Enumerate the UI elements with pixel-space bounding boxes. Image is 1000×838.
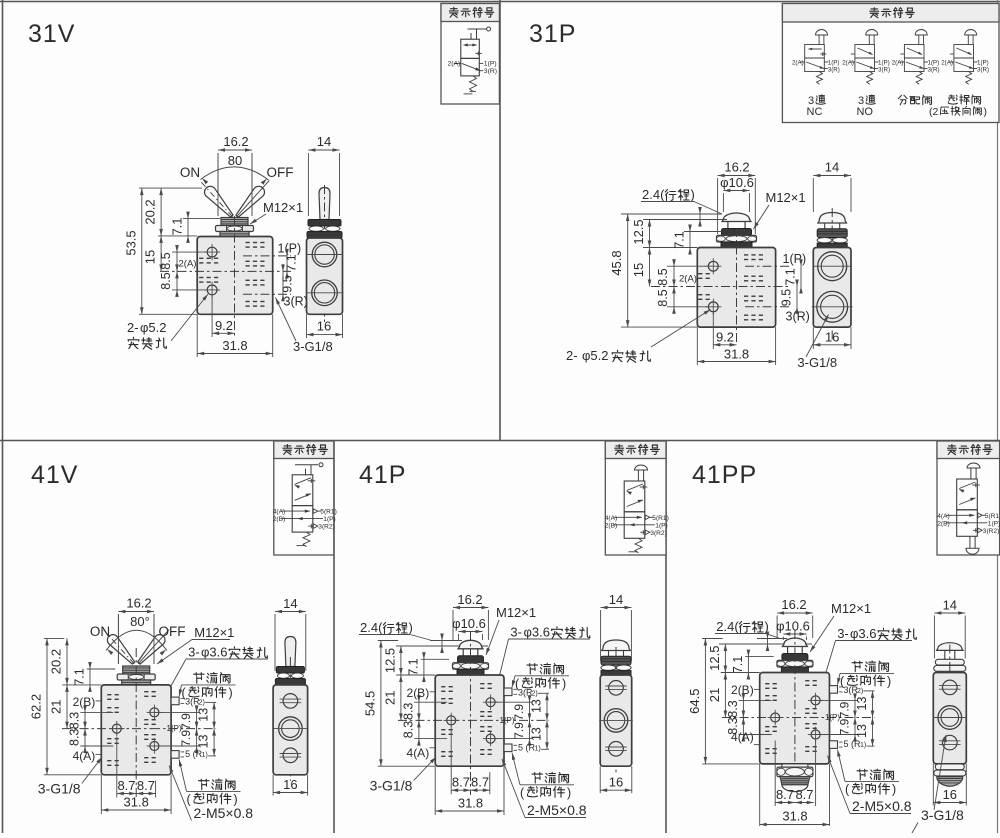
svg-text:7.1: 7.1 (285, 254, 299, 271)
svg-text:7.1: 7.1 (731, 656, 745, 673)
svg-text:): ) (409, 620, 413, 635)
svg-text:3-: 3- (188, 645, 200, 660)
svg-text:4(A): 4(A) (407, 746, 430, 760)
svg-text:16.2: 16.2 (781, 597, 806, 612)
svg-text:5(R1): 5(R1) (320, 509, 337, 516)
svg-text:2-M5×0.8: 2-M5×0.8 (852, 798, 912, 814)
svg-text:8.3: 8.3 (68, 729, 82, 746)
svg-text:φ10.6: φ10.6 (452, 616, 486, 631)
svg-text:8.3: 8.3 (401, 721, 415, 738)
svg-text:2(B): 2(B) (937, 520, 949, 527)
svg-text:41V: 41V (31, 461, 78, 489)
svg-text:2(B): 2(B) (731, 683, 754, 697)
svg-text:4(A): 4(A) (731, 730, 754, 744)
svg-text:45.8: 45.8 (609, 250, 624, 275)
svg-text:2-M5×0.8: 2-M5×0.8 (527, 802, 587, 818)
svg-text:13: 13 (197, 708, 211, 722)
svg-text:2(A): 2(A) (842, 60, 854, 67)
svg-text:3(R): 3(R) (977, 66, 989, 73)
svg-text:31.8: 31.8 (782, 809, 807, 824)
svg-text:2(B): 2(B) (407, 686, 430, 700)
svg-text:3-G1/8: 3-G1/8 (370, 778, 413, 794)
svg-text:41PP: 41PP (692, 461, 757, 489)
svg-text:φ3.6: φ3.6 (850, 626, 877, 641)
svg-text:16.2: 16.2 (126, 596, 151, 611)
svg-text:8.7: 8.7 (471, 775, 489, 790)
svg-text:7.1: 7.1 (73, 668, 87, 685)
svg-text:2(A): 2(A) (941, 60, 953, 67)
svg-text:9.2: 9.2 (716, 330, 734, 345)
svg-text:13: 13 (530, 727, 544, 741)
svg-text:14: 14 (609, 592, 623, 607)
svg-text:4(A): 4(A) (937, 513, 949, 520)
svg-text:OFF: OFF (267, 165, 294, 180)
svg-text:NO: NO (856, 106, 873, 118)
svg-text:15: 15 (631, 263, 646, 277)
svg-text:80°: 80° (130, 614, 150, 629)
svg-text:9.2: 9.2 (215, 318, 233, 333)
svg-text:2(A): 2(A) (792, 60, 804, 67)
svg-text:15: 15 (143, 250, 158, 264)
svg-text:16: 16 (943, 787, 957, 802)
svg-text:20.2: 20.2 (49, 649, 64, 674)
svg-text:8.7: 8.7 (137, 778, 155, 793)
svg-text:M12×1: M12×1 (496, 605, 536, 620)
svg-text:62.2: 62.2 (29, 694, 44, 719)
svg-text:21: 21 (49, 700, 64, 714)
svg-text:8.7: 8.7 (117, 778, 135, 793)
svg-text:9.5: 9.5 (281, 275, 295, 292)
svg-text:80: 80 (228, 153, 242, 168)
svg-text:3(R): 3(R) (284, 295, 308, 309)
svg-text:7.1: 7.1 (673, 231, 687, 248)
svg-text:2(A): 2(A) (179, 259, 197, 270)
svg-text:3-G1/8: 3-G1/8 (38, 781, 81, 797)
svg-text:4(A): 4(A) (273, 509, 285, 516)
svg-text:φ5.2: φ5.2 (582, 348, 609, 363)
svg-text:31.8: 31.8 (124, 795, 149, 810)
svg-text:31V: 31V (28, 20, 75, 48)
svg-text:54.5: 54.5 (362, 691, 377, 716)
svg-text:31.8: 31.8 (458, 796, 483, 811)
svg-text:): ) (567, 786, 571, 800)
svg-text:φ5.2: φ5.2 (140, 320, 167, 335)
svg-text:31.8: 31.8 (222, 338, 247, 353)
svg-text:1(P): 1(P) (988, 520, 1000, 527)
svg-text:7.1: 7.1 (784, 268, 798, 285)
svg-text:14: 14 (825, 160, 839, 175)
svg-text:2(B): 2(B) (73, 695, 96, 709)
svg-text:3(R): 3(R) (828, 66, 840, 73)
svg-text:5(R1): 5(R1) (652, 515, 669, 522)
svg-text:): ) (562, 677, 566, 691)
svg-text:3(R): 3(R) (928, 66, 940, 73)
svg-text:1(P): 1(P) (655, 522, 667, 529)
svg-text:8.5: 8.5 (656, 268, 670, 285)
svg-text:31P: 31P (529, 20, 576, 48)
svg-text:ON: ON (90, 624, 110, 639)
svg-text:21: 21 (382, 690, 397, 704)
svg-text:9.5: 9.5 (780, 289, 794, 306)
svg-text:1(P): 1(P) (167, 724, 182, 733)
svg-text:): ) (984, 106, 988, 118)
svg-text:13: 13 (855, 724, 869, 738)
svg-text:(2: (2 (929, 106, 938, 118)
svg-text:13: 13 (855, 697, 869, 711)
svg-text:53.5: 53.5 (124, 230, 139, 255)
svg-text:5(R1): 5(R1) (985, 513, 1000, 520)
svg-text:16: 16 (317, 319, 331, 334)
svg-text:2(A): 2(A) (447, 61, 460, 68)
svg-text:31.8: 31.8 (724, 347, 749, 362)
svg-text:13: 13 (530, 699, 544, 713)
svg-text:8.5: 8.5 (656, 289, 670, 306)
svg-text:16.2: 16.2 (223, 134, 248, 149)
svg-text:14: 14 (943, 598, 957, 613)
svg-text:16: 16 (825, 330, 839, 345)
svg-text:5 (R: 5 (R (844, 739, 862, 749)
svg-text:8.5: 8.5 (159, 252, 173, 269)
svg-text:1): 1) (860, 742, 866, 749)
svg-text:14: 14 (283, 596, 297, 611)
svg-text:φ3.6: φ3.6 (201, 645, 228, 660)
svg-text:φ3.6: φ3.6 (524, 625, 551, 640)
svg-text:3(R2): 3(R2) (983, 528, 1000, 535)
svg-text:2-M5×0.8: 2-M5×0.8 (194, 805, 254, 821)
svg-text:2.4(: 2.4( (360, 620, 383, 635)
svg-text:2(A): 2(A) (892, 60, 904, 67)
svg-text:NC: NC (807, 106, 823, 118)
svg-text:1): 1) (202, 752, 208, 759)
svg-text:13: 13 (197, 735, 211, 749)
svg-text:1(P): 1(P) (783, 252, 807, 266)
svg-text:21: 21 (707, 688, 722, 702)
svg-text:5 (R: 5 (R (185, 749, 203, 759)
svg-text:4(A): 4(A) (73, 749, 96, 763)
svg-text:1): 1) (535, 745, 541, 752)
svg-text:2-: 2- (566, 348, 578, 363)
svg-text:3-G1/8: 3-G1/8 (797, 355, 837, 370)
svg-text:φ10.6: φ10.6 (776, 619, 810, 634)
svg-text:ON: ON (180, 165, 200, 180)
svg-text:M12×1: M12×1 (831, 601, 871, 616)
svg-text:8.3: 8.3 (68, 712, 82, 729)
svg-text:φ10.6: φ10.6 (720, 175, 754, 190)
svg-text:3-: 3- (510, 625, 522, 640)
svg-text:8.3: 8.3 (726, 700, 740, 717)
svg-text:3(R): 3(R) (878, 66, 890, 73)
svg-text:1(P): 1(P) (323, 516, 335, 523)
svg-text:2): 2) (532, 690, 538, 697)
svg-text:7.1: 7.1 (170, 217, 185, 235)
svg-text:2.4(: 2.4( (716, 619, 739, 634)
svg-text:8.3: 8.3 (401, 703, 415, 720)
svg-text:12.5: 12.5 (382, 648, 397, 673)
svg-text:4(A): 4(A) (605, 515, 617, 522)
svg-text:16.2: 16.2 (724, 160, 749, 175)
svg-text:1(P): 1(P) (499, 716, 514, 725)
svg-text:16.2: 16.2 (457, 592, 482, 607)
svg-text:7.1: 7.1 (406, 658, 420, 675)
svg-text:8.7: 8.7 (452, 775, 470, 790)
svg-text:8.5: 8.5 (159, 272, 173, 289)
svg-text:8.7: 8.7 (795, 787, 813, 802)
svg-text:2-: 2- (127, 320, 139, 335)
svg-text:8.7: 8.7 (776, 787, 794, 802)
svg-text:2.4(: 2.4( (642, 187, 665, 202)
svg-text:3(R2): 3(R2) (318, 524, 335, 531)
svg-text:14: 14 (317, 134, 331, 149)
svg-text:M12×1: M12×1 (194, 625, 234, 640)
svg-text:1(P): 1(P) (825, 713, 840, 722)
svg-text:16: 16 (283, 777, 297, 792)
svg-text:): ) (229, 686, 233, 700)
svg-text:41P: 41P (359, 461, 406, 489)
svg-text:1(P): 1(P) (278, 242, 302, 256)
svg-text:2(A): 2(A) (679, 274, 697, 285)
svg-text:12.5: 12.5 (631, 219, 646, 244)
svg-text:2): 2) (199, 699, 205, 706)
svg-text:3-: 3- (837, 626, 849, 641)
svg-text:2(B): 2(B) (605, 522, 617, 529)
svg-text:): ) (887, 674, 891, 688)
svg-text:16: 16 (609, 775, 623, 790)
svg-text:2): 2) (857, 688, 863, 695)
svg-text:20.2: 20.2 (143, 199, 158, 224)
svg-text:12.5: 12.5 (707, 646, 722, 671)
svg-text:3(R): 3(R) (786, 310, 810, 324)
svg-text:): ) (691, 187, 695, 202)
svg-text:3(R2): 3(R2) (650, 530, 667, 537)
svg-text:5 (R: 5 (R (518, 742, 536, 752)
svg-text:2(B): 2(B) (273, 516, 285, 523)
svg-text:M12×1: M12×1 (263, 200, 303, 215)
svg-text:): ) (892, 783, 896, 797)
svg-text:M12×1: M12×1 (766, 190, 806, 205)
svg-text:64.5: 64.5 (687, 689, 702, 714)
svg-text:1(P): 1(P) (484, 61, 497, 68)
svg-text:3-G1/8: 3-G1/8 (921, 807, 964, 823)
svg-text:3(R): 3(R) (484, 68, 497, 75)
svg-text:3-G1/8: 3-G1/8 (293, 339, 333, 354)
